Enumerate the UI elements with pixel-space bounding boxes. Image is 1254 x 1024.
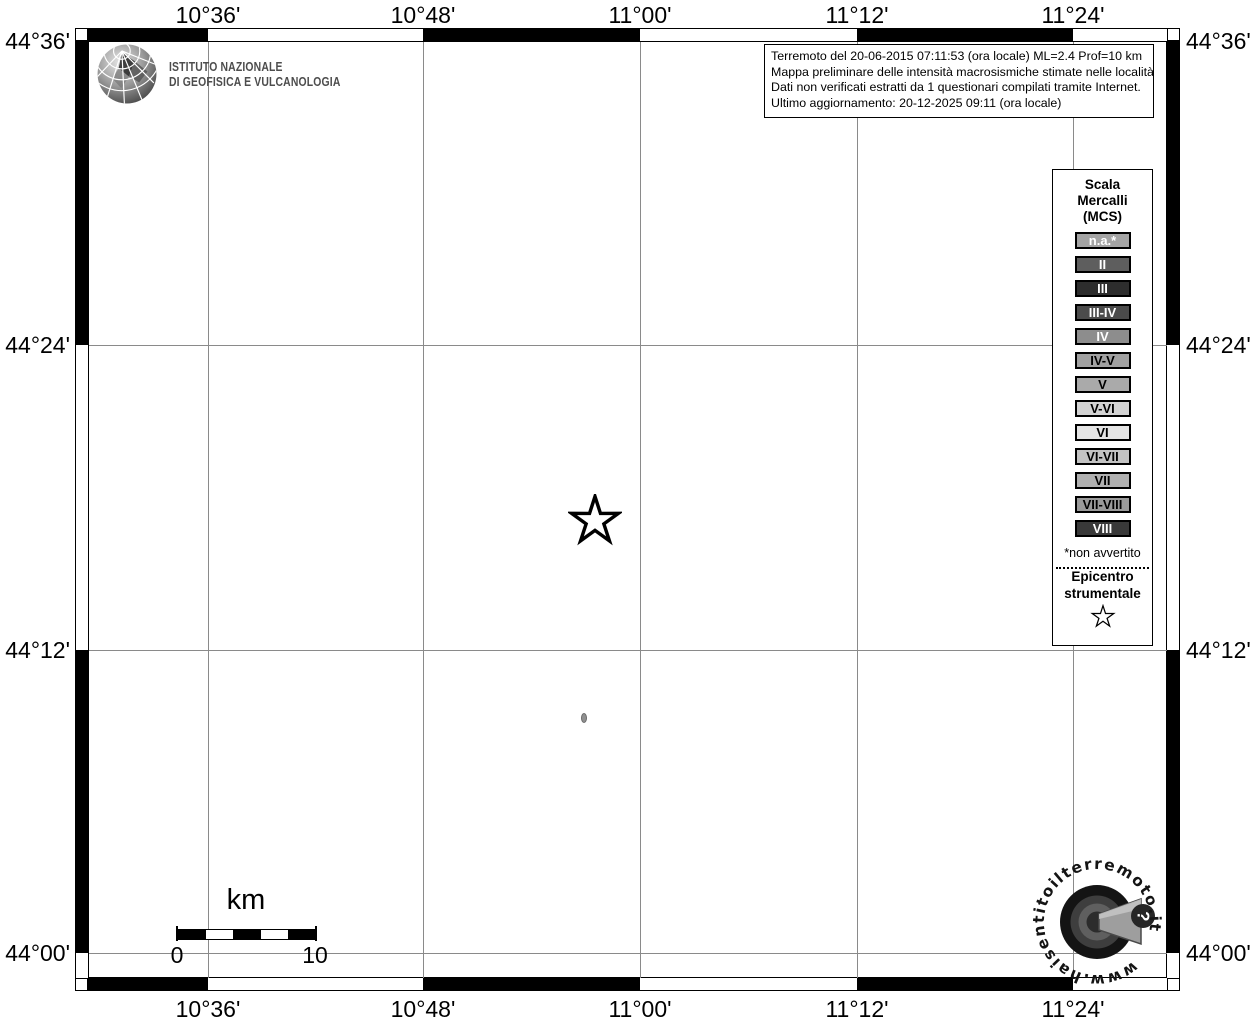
mcs-legend: Scala Mercalli (MCS) n.a.*IIIIIIII-IVIVI… [1052, 169, 1153, 646]
frame-band-right [1167, 650, 1179, 953]
scale-segment [288, 930, 316, 939]
legend-swatch-na: n.a.* [1075, 232, 1131, 249]
axis-label-left: 44°36' [0, 28, 70, 54]
frame-corner [75, 28, 88, 41]
legend-footnote: *non avvertito [1053, 546, 1152, 560]
info-line-event: Terremoto del 20-06-2015 07:11:53 (ora l… [771, 49, 1147, 65]
frame-band-left [76, 650, 88, 953]
legend-swatch-vvi: V-VI [1075, 400, 1131, 417]
scale-bar-tick [176, 926, 178, 941]
axis-label-top: 11°24' [1013, 2, 1133, 29]
frame-band-top [88, 29, 208, 41]
ingv-logo: ISTITUTO NAZIONALE DI GEOFISICA E VULCAN… [95, 42, 383, 106]
legend-swatch-vivii: VI-VII [1075, 448, 1131, 465]
frame-corner [1167, 978, 1180, 991]
legend-swatch-viii: VIII [1075, 520, 1131, 537]
legend-swatch-ivv: IV-V [1075, 352, 1131, 369]
frame-band-bottom [88, 978, 208, 990]
earthquake-info-box: Terremoto del 20-06-2015 07:11:53 (ora l… [764, 44, 1154, 118]
scale-bar-tick [315, 926, 317, 941]
legend-swatch-viiviii: VII-VIII [1075, 496, 1131, 513]
axis-label-bottom: 11°24' [1013, 996, 1133, 1023]
axis-label-right: 44°24' [1186, 332, 1254, 358]
scale-segment [233, 930, 261, 939]
axis-label-top: 10°36' [148, 2, 268, 29]
ingv-name-line2: DI GEOFISICA E VULCANOLOGIA [169, 74, 341, 89]
gridline-vertical [208, 42, 209, 978]
scale-segment [261, 930, 289, 939]
scale-bar-segments [177, 929, 317, 940]
locality-marker-na [581, 713, 587, 723]
info-line-data-source: Dati non verificati estratti da 1 questi… [771, 80, 1147, 96]
axis-label-bottom: 10°48' [363, 996, 483, 1023]
axis-label-left: 44°24' [0, 332, 70, 358]
gridline-horizontal [89, 953, 1167, 954]
macroseismic-intensity-map: Terremoto del 20-06-2015 07:11:53 (ora l… [0, 0, 1254, 1024]
legend-epicentro-line1: Epicentro [1053, 569, 1152, 586]
frame-band-top [857, 29, 1073, 41]
legend-swatches: n.a.*IIIIIIII-IVIVIV-VVV-VIVIVI-VIIVIIVI… [1053, 232, 1152, 537]
frame-band-top [423, 29, 640, 41]
axis-label-right: 44°36' [1186, 28, 1254, 54]
axis-label-top: 11°12' [797, 2, 917, 29]
frame-band-bottom [640, 978, 857, 990]
axis-label-top: 10°48' [363, 2, 483, 29]
axis-label-left: 44°12' [0, 637, 70, 663]
frame-corner [1167, 28, 1180, 41]
frame-band-top [208, 29, 423, 41]
frame-band-bottom [423, 978, 640, 990]
legend-title-line1: Scala [1053, 177, 1152, 193]
ingv-name: ISTITUTO NAZIONALE DI GEOFISICA E VULCAN… [169, 59, 341, 89]
gridline-vertical [423, 42, 424, 978]
legend-title-line2: Mercalli [1053, 193, 1152, 209]
axis-label-bottom: 10°36' [148, 996, 268, 1023]
frame-band-left [76, 41, 88, 345]
frame-band-left [76, 953, 88, 978]
info-line-updated: Ultimo aggiornamento: 20-12-2025 09:11 (… [771, 96, 1147, 112]
axis-label-left: 44°00' [0, 940, 70, 966]
scale-segment [178, 930, 206, 939]
gridline-vertical [640, 42, 641, 978]
map-frame-inner [88, 41, 1167, 978]
gridline-horizontal [89, 345, 1167, 346]
legend-swatch-iiiiv: III-IV [1075, 304, 1131, 321]
legend-swatch-ii: II [1075, 256, 1131, 273]
legend-swatch-iv: IV [1075, 328, 1131, 345]
axis-label-bottom: 11°00' [580, 996, 700, 1023]
legend-epicentro-line2: strumentale [1053, 586, 1152, 603]
legend-epicenter-star-icon [1090, 604, 1116, 630]
legend-swatch-iii: III [1075, 280, 1131, 297]
axis-label-bottom: 11°12' [797, 996, 917, 1023]
legend-swatch-v: V [1075, 376, 1131, 393]
axis-label-right: 44°12' [1186, 637, 1254, 663]
info-line-map-type: Mappa preliminare delle intensità macros… [771, 65, 1147, 81]
legend-title-line3: (MCS) [1053, 209, 1152, 225]
scale-segment [206, 930, 234, 939]
scale-bar-end: 10 [285, 942, 345, 969]
frame-band-left [76, 345, 88, 650]
frame-band-right [1167, 345, 1179, 650]
scale-bar-unit: km [177, 884, 315, 917]
axis-label-top: 11°00' [580, 2, 700, 29]
ingv-name-line1: ISTITUTO NAZIONALE [169, 59, 341, 74]
legend-swatch-vi: VI [1075, 424, 1131, 441]
haisentitoilterremoto-logo: ? www.haisentitoilterremoto.it [1027, 852, 1167, 992]
frame-band-right [1167, 41, 1179, 345]
frame-band-top [640, 29, 857, 41]
frame-band-bottom [208, 978, 423, 990]
scale-bar-start: 0 [147, 942, 207, 969]
epicenter-star-icon [568, 494, 622, 548]
frame-band-right [1167, 953, 1179, 978]
gridline-vertical [857, 42, 858, 978]
axis-label-right: 44°00' [1186, 940, 1254, 966]
ingv-globe-icon [95, 42, 159, 106]
legend-swatch-vii: VII [1075, 472, 1131, 489]
frame-band-top [1073, 29, 1167, 41]
frame-corner [75, 978, 88, 991]
gridline-horizontal [89, 650, 1167, 651]
